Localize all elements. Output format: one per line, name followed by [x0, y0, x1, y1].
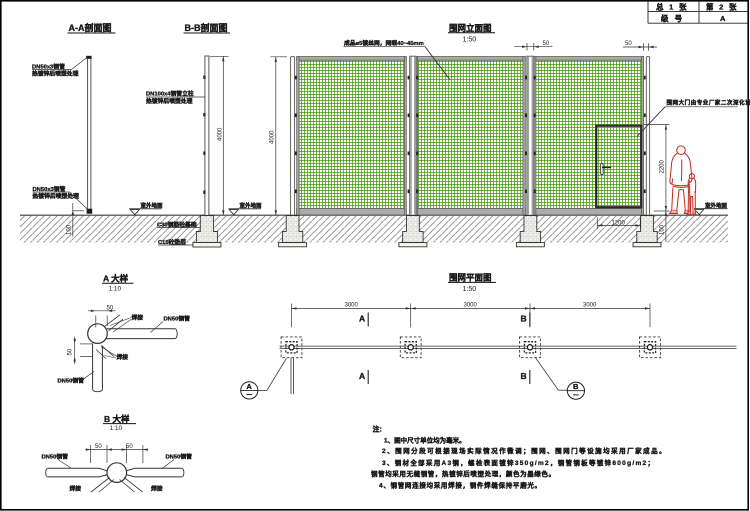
svg-text:DN50x3钢管: DN50x3钢管 [33, 185, 66, 193]
svg-text:3000: 3000 [345, 302, 359, 308]
svg-text:3000: 3000 [583, 302, 597, 308]
svg-text:热镀锌后喷塑处理: 热镀锌后喷塑处理 [146, 97, 193, 105]
svg-text:50: 50 [107, 306, 114, 312]
svg-text:A: A [359, 371, 365, 381]
svg-text:DN50钢管: DN50钢管 [164, 314, 191, 322]
svg-text:A: A [359, 314, 365, 324]
svg-text:3000: 3000 [464, 302, 478, 308]
svg-text:B: B [521, 314, 527, 324]
svg-text:1、图中尺寸单位均为毫米。: 1、图中尺寸单位均为毫米。 [384, 435, 466, 444]
svg-text:100: 100 [660, 224, 666, 235]
svg-text:50: 50 [543, 41, 550, 47]
svg-text:焊接: 焊接 [70, 484, 82, 492]
svg-text:50: 50 [126, 444, 133, 450]
svg-text:1:10: 1:10 [109, 286, 122, 293]
svg-text:A 大样: A 大样 [103, 274, 129, 284]
svg-text:50: 50 [625, 41, 632, 47]
svg-text:DN50钢管: DN50钢管 [42, 452, 69, 460]
svg-text:B-B剖面图: B-B剖面图 [185, 22, 228, 33]
svg-text:室外地面: 室外地面 [705, 202, 728, 210]
svg-text:100: 100 [67, 224, 73, 235]
svg-text:第 2 张: 第 2 张 [706, 1, 738, 11]
svg-text:4000: 4000 [270, 130, 276, 144]
svg-text:注:: 注: [373, 425, 382, 434]
svg-text:室外地面: 室外地面 [240, 202, 263, 210]
svg-text:级 号: 级 号 [660, 13, 684, 23]
svg-text:C15砼垫层: C15砼垫层 [158, 238, 186, 246]
svg-text:A: A [720, 14, 726, 23]
svg-text:焊接: 焊接 [132, 314, 144, 322]
svg-text:DN100x4钢管立柱: DN100x4钢管立柱 [146, 90, 194, 98]
svg-text:焊接: 焊接 [151, 484, 163, 492]
svg-text:A: A [246, 382, 252, 391]
svg-text:50: 50 [67, 348, 73, 355]
svg-text:DN50钢管: DN50钢管 [166, 452, 193, 460]
svg-text:DN50x3钢管: DN50x3钢管 [32, 62, 65, 70]
svg-text:4、钢管网连接均采用焊接，钢件焊缝保持平磨光。: 4、钢管网连接均采用焊接，钢件焊缝保持平磨光。 [379, 480, 542, 489]
svg-text:3、钢材全部采用A3钢，螺栓表面镀锌350g/m2，钢管钢板: 3、钢材全部采用A3钢，螺栓表面镀锌350g/m2，钢管钢板等镀锌600g/m2… [382, 458, 655, 467]
svg-text:室外地面: 室外地面 [141, 202, 164, 210]
svg-text:钢管均采用无缝钢管，热镀锌后喷塑处理，颜色为墨绿色。: 钢管均采用无缝钢管，热镀锌后喷塑处理，颜色为墨绿色。 [371, 469, 556, 478]
svg-text:B 大样: B 大样 [104, 414, 130, 424]
svg-text:1:50: 1:50 [463, 286, 477, 293]
svg-text:热镀锌后喷塑处理: 热镀锌后喷塑处理 [33, 192, 80, 200]
svg-text:1200: 1200 [612, 220, 626, 226]
svg-text:1:10: 1:10 [110, 425, 123, 432]
svg-text:DN50钢管: DN50钢管 [58, 377, 85, 385]
svg-text:A-A剖面图: A-A剖面图 [69, 22, 112, 33]
svg-text:总 1 张: 总 1 张 [656, 1, 688, 11]
svg-text:B: B [521, 371, 527, 381]
svg-text:成品ø5镀丝网，网眼40~45mm: 成品ø5镀丝网，网眼40~45mm [344, 39, 424, 47]
svg-text:50: 50 [95, 444, 102, 450]
svg-text:热镀锌后喷塑处理: 热镀锌后喷塑处理 [32, 69, 79, 77]
svg-text:B: B [573, 382, 579, 391]
svg-text:焊接: 焊接 [117, 353, 129, 361]
svg-text:C30钢筋砼基础: C30钢筋砼基础 [157, 220, 197, 228]
svg-text:1:50: 1:50 [463, 37, 477, 44]
svg-text:4000: 4000 [218, 127, 224, 141]
svg-text:围网平面图: 围网平面图 [449, 273, 492, 283]
svg-text:围网立面图: 围网立面图 [449, 23, 492, 33]
svg-text:围网大门由专业厂家二次深化设计: 围网大门由专业厂家二次深化设计 [667, 99, 750, 107]
svg-text:2200: 2200 [660, 159, 666, 173]
svg-text:2、围网分段可根据现场实际情况作微调；围网、围网门等设施均采: 2、围网分段可根据现场实际情况作微调；围网、围网门等设施均采用厂家成品。 [382, 446, 667, 455]
